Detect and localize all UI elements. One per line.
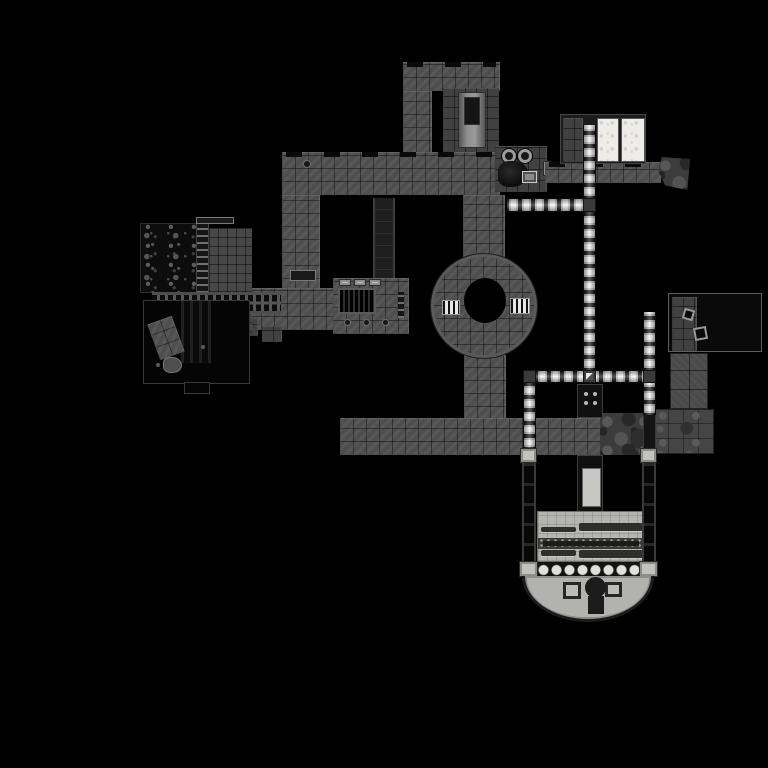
store-room [209,228,252,292]
altar-shaft [577,455,603,515]
lit-corridor-east-upper [643,312,656,370]
skylight-1 [339,279,351,286]
pillar-cap-sw [519,561,538,577]
pillar-east [642,463,656,563]
debris-pile [163,357,182,373]
ladder-shaft [196,223,209,293]
elevator-shaft [458,92,486,148]
crate-frame-2 [693,326,708,341]
apse-pad-west [563,582,581,599]
rotunda-south-corridor [464,355,506,420]
vent-shaft [577,384,603,418]
pillar-cap-ne [640,448,657,463]
skylight-3 [369,279,381,286]
pew-sw [541,550,576,556]
pew-nw [541,527,576,532]
east-room-lower [653,409,714,454]
nave-aisle [538,538,644,549]
lit-corridor-north-lower [583,212,596,370]
floor-dot-1 [345,320,350,325]
vent-dot-2 [593,392,597,396]
lit-junction-east [643,370,656,383]
lit-junction-center [583,370,596,383]
grate-room [333,278,409,334]
south-corridor-rocks [600,413,645,455]
floor-dot-3 [383,320,388,325]
elevator-car [464,97,480,125]
upper-block-west-corridor [403,91,432,154]
main-corridor-south [340,418,616,455]
bright-panel-east [621,118,645,162]
east-room-upper [670,353,708,409]
vent-dot-3 [584,401,588,405]
pillar-cap-se [639,561,658,577]
machine-eye-right [518,149,532,163]
dark-passage [373,198,395,282]
pit-room-annex [184,382,210,394]
altar-panel [582,468,601,507]
bright-panel-west [597,118,619,162]
speck-1 [201,345,205,349]
side-ladder [397,292,405,318]
lit-corner-west [523,370,536,383]
pit-shaft [181,301,211,363]
stair-step-2 [262,326,282,342]
lit-corridor-east-dark [643,415,656,451]
rotunda [431,254,537,358]
lit-corridor-east-mid [643,383,656,415]
lit-junction-north [583,198,596,212]
pew-se [579,550,643,558]
vent-dot-1 [584,392,588,396]
void-room [668,293,762,352]
rotunda-door-west [442,300,460,315]
bright-room [560,114,646,164]
level-map-canvas[interactable] [0,0,768,768]
rotunda-hole [464,278,506,323]
nave-floor [537,511,643,562]
aisle-core [543,541,639,546]
pillar-west [522,463,536,563]
roof-vent [196,217,234,224]
wall-slot [290,270,316,281]
upper-block-inner-room [443,88,499,152]
floor-drain [304,161,310,167]
pit-room [143,300,250,384]
pew-ne [579,523,643,531]
floor-dot-2 [364,320,369,325]
lit-corridor-west [507,198,584,212]
vent-dot-4 [593,401,597,405]
apse-pad-east [605,582,622,597]
floor-grate [338,288,376,314]
pulpit [585,577,606,598]
machine-room [495,146,547,192]
pulpit-stem [588,596,604,614]
rubble-wedge [658,157,690,190]
main-corridor-west [282,152,500,195]
lit-corridor-southwest [523,383,536,449]
rotunda-door-east [510,298,530,314]
bright-room-tiles [563,118,583,162]
fallen-platform [147,316,184,361]
lit-corridor-north-upper [583,125,596,198]
pillar-cap-nw [520,448,537,463]
east-corridor [545,162,661,183]
supply-crate [522,171,537,183]
speck-2 [156,363,160,367]
upper-block-top [403,62,500,91]
apse [522,576,654,622]
cave-room [140,223,197,293]
skylight-2 [354,279,366,286]
rotunda-north-corridor [463,195,505,257]
void-room-tiles [672,297,697,351]
